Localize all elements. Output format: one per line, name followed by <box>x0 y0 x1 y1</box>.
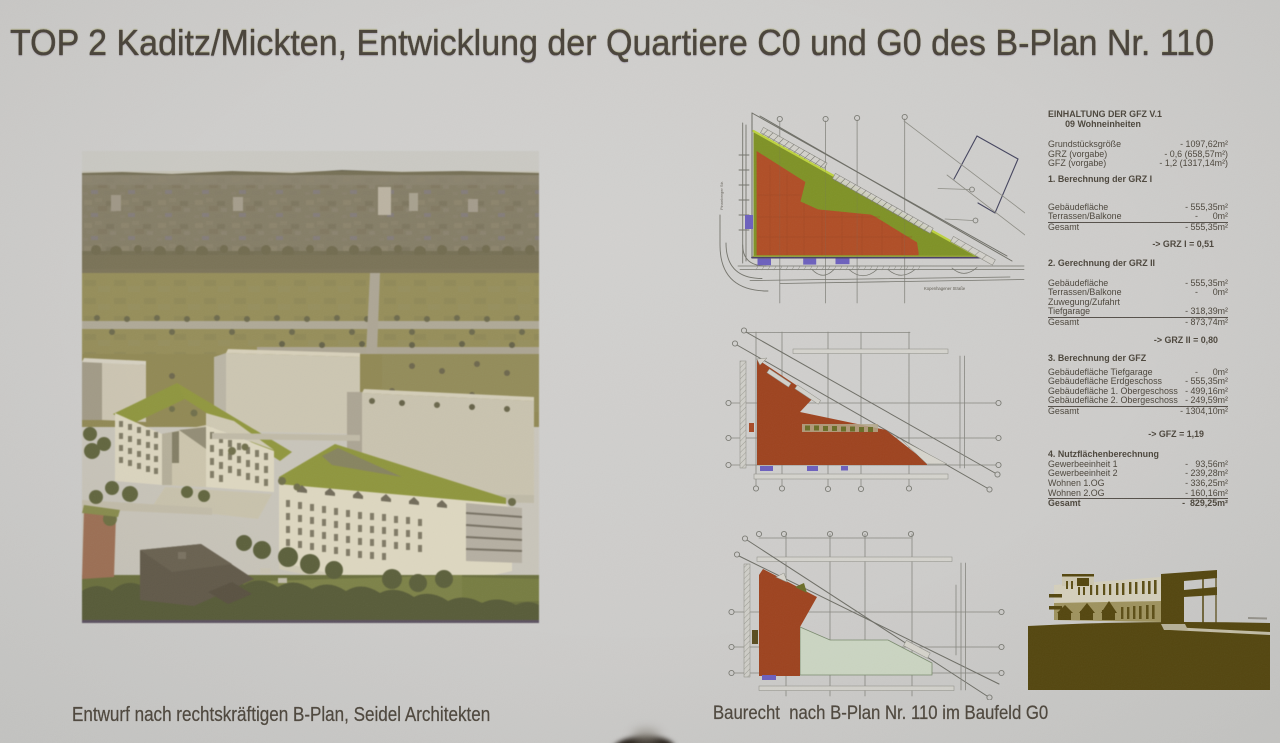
svg-text:Pinneberger Str.: Pinneberger Str. <box>719 181 724 210</box>
svg-text:Kopenhagener Straße: Kopenhagener Straße <box>924 286 966 291</box>
